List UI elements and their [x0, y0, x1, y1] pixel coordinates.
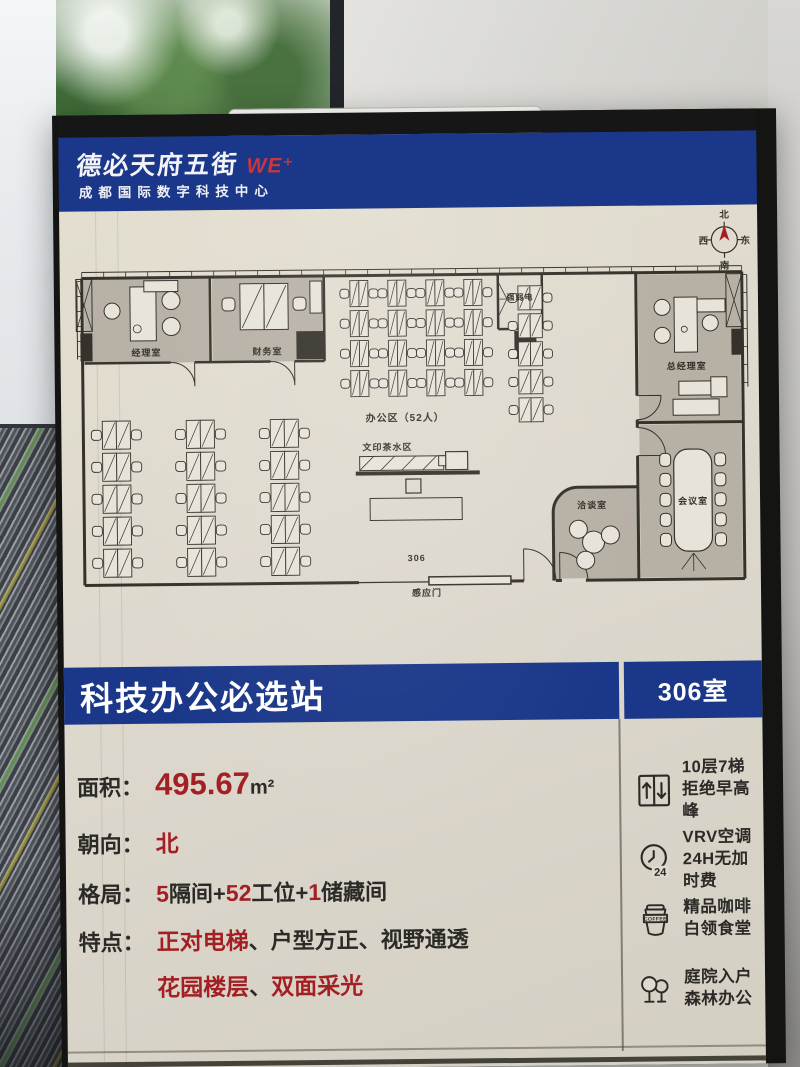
svg-text:感应门: 感应门	[412, 587, 442, 598]
svg-text:强弱电: 强弱电	[506, 292, 533, 302]
info-value: 储藏间	[321, 874, 387, 907]
poster-body: 北东南西 经理室财务室强弱电办公区（52人）文印茶水区总经理室洽谈室会议室306…	[59, 204, 766, 1067]
info-row: 特点：正对电梯、户型方正、视野通透	[78, 919, 468, 957]
svg-text:文印茶水区: 文印茶水区	[361, 441, 412, 453]
feature-item: 庭院入户森林办公	[637, 966, 763, 1011]
info-value: 1	[308, 879, 321, 906]
info-value: 工位+	[251, 875, 308, 908]
info-value: 5	[156, 881, 169, 908]
header-subtitle: 成都国际数字科技中心	[79, 179, 274, 201]
info-value: 正对电梯	[156, 922, 248, 957]
info-label: 面积：	[77, 770, 155, 803]
svg-text:财务室: 财务室	[251, 345, 282, 356]
info-value: m²	[250, 777, 275, 800]
feature-text: 10层7梯拒绝早高峰	[682, 756, 762, 822]
info-label	[79, 996, 157, 997]
info-row: 花园楼层、双面采光	[79, 967, 363, 1004]
info-value: 495.67	[155, 766, 250, 803]
photo-of-floorplan-poster: 德必天府五街 WE⁺ 成都国际数字科技中心 北东南西 经理室财务室强弱电办公区（…	[0, 0, 800, 1067]
poster-header: 德必天府五街 WE⁺ 成都国际数字科技中心	[58, 130, 757, 211]
feature-item: COFFEE精品咖啡白领食堂	[636, 896, 762, 941]
column-divider	[618, 719, 623, 1051]
svg-text:306: 306	[408, 553, 426, 563]
svg-text:洽谈室: 洽谈室	[577, 499, 607, 510]
svg-text:西: 西	[699, 236, 709, 247]
info-row: 面积：495.67m²	[77, 766, 275, 804]
banner: 科技办公必选站 306室	[64, 660, 763, 724]
info-value: 、户型方正、视野通透	[248, 921, 468, 955]
poster-inner: 德必天府五街 WE⁺ 成都国际数字科技中心 北东南西 经理室财务室强弱电办公区（…	[58, 108, 766, 1067]
info-label: 特点：	[79, 925, 157, 958]
footer-line	[68, 1044, 766, 1053]
floor-plan: 经理室财务室强弱电办公区（52人）文印茶水区总经理室洽谈室会议室306感应门	[74, 256, 754, 605]
svg-text:会议室: 会议室	[678, 495, 708, 506]
banner-room-cell: 306室	[624, 660, 763, 718]
svg-text:北: 北	[719, 209, 729, 221]
svg-text:东: 东	[741, 234, 751, 246]
info-value: 双面采光	[271, 967, 363, 1002]
brand-mark: WE⁺	[246, 153, 294, 179]
info-row: 格局：5隔间+52工位+1储藏间	[78, 874, 387, 909]
svg-text:经理室: 经理室	[131, 347, 161, 358]
info-row: 朝向：北	[77, 825, 178, 860]
clock-24-icon: 24	[636, 841, 674, 879]
info-label: 朝向：	[77, 827, 155, 860]
svg-text:24: 24	[654, 866, 667, 878]
feature-text: VRV空调24H无加时费	[683, 826, 763, 892]
info-value: 52	[226, 880, 252, 907]
info-value: 花园楼层	[157, 968, 249, 1003]
feature-item: 10层7梯拒绝早高峰	[635, 756, 762, 823]
background-wall	[0, 0, 60, 448]
feature-text: 庭院入户森林办公	[684, 967, 752, 1011]
info-value: 隔间+	[169, 876, 226, 909]
poster-bottom-edge	[68, 1055, 766, 1067]
banner-left: 科技办公必选站	[64, 662, 620, 725]
carpet-shadow	[0, 860, 64, 1067]
brand-name: 德必天府五街	[75, 145, 240, 183]
info-value: 、	[249, 970, 271, 1002]
svg-text:COFFEE: COFFEE	[644, 916, 667, 922]
banner-title: 科技办公必选站	[80, 669, 325, 720]
svg-text:总经理室: 总经理室	[667, 360, 707, 371]
info-value: 北	[155, 825, 178, 859]
info-label: 格局：	[78, 877, 156, 910]
brand-logo: 德必天府五街 WE⁺	[76, 144, 294, 182]
poster-board: 德必天府五街 WE⁺ 成都国际数字科技中心 北东南西 经理室财务室强弱电办公区（…	[52, 108, 786, 1067]
coffee-icon: COFFEE	[636, 900, 674, 938]
elevator-icon	[635, 771, 673, 809]
svg-text:办公区（52人）: 办公区（52人）	[366, 411, 445, 425]
trees-icon	[637, 970, 675, 1008]
feature-item: 24VRV空调24H无加时费	[636, 826, 763, 893]
room-number: 306室	[658, 671, 729, 708]
feature-text: 精品咖啡白领食堂	[683, 897, 751, 941]
glass-panel	[344, 0, 800, 124]
